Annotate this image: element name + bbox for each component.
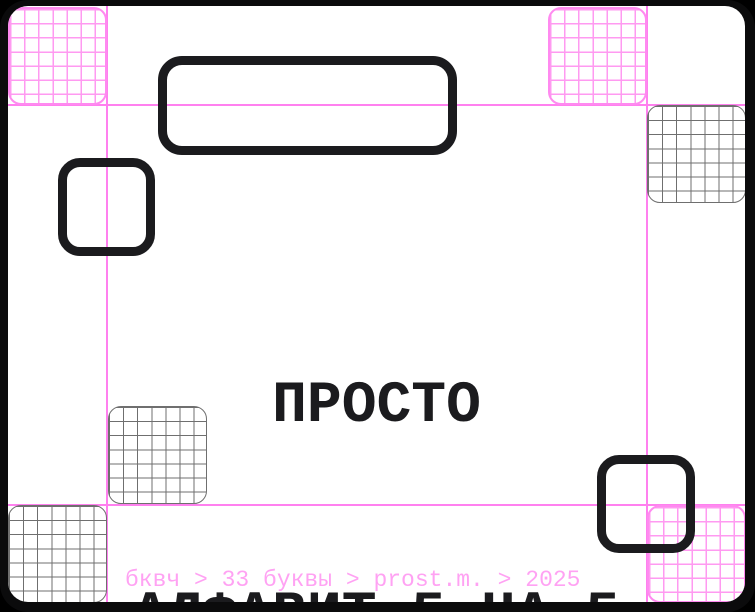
footer-caption: бквч > 33 буквы > prost.m. > 2025 [125,567,580,594]
outer-frame: ПРОСТО АЛФАВИТ 5 НА 5 бквч > 33 буквы > … [0,0,755,612]
canvas: ПРОСТО АЛФАВИТ 5 НА 5 бквч > 33 буквы > … [8,6,745,602]
grid-square-gray-right [647,105,745,203]
grid-square-pink-top-right [548,7,647,105]
outline-rectangle-top [158,56,457,155]
title-line-1: ПРОСТО [8,372,745,442]
page-title: ПРОСТО АЛФАВИТ 5 НА 5 [8,232,745,602]
grid-square-pink-top-left [8,7,107,105]
